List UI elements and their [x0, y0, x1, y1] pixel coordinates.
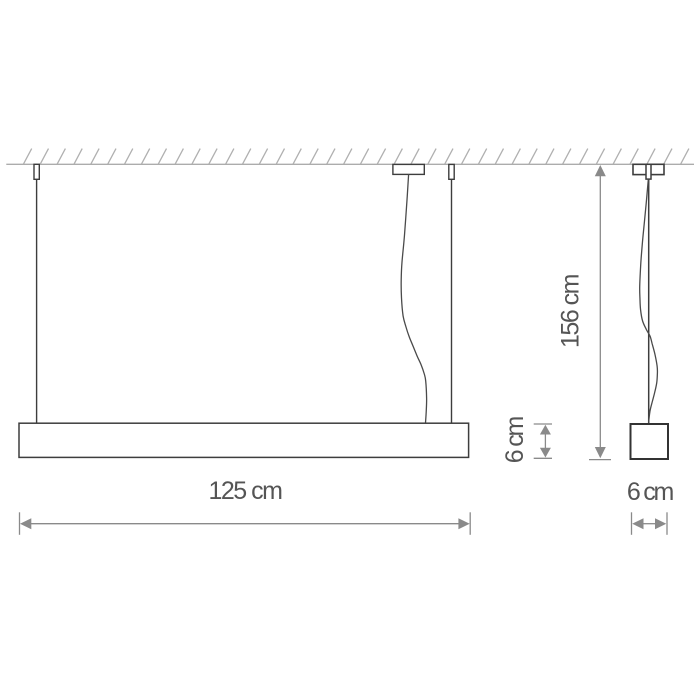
svg-text:125 cm: 125 cm — [209, 477, 283, 505]
svg-text:156 cm: 156 cm — [557, 274, 585, 348]
svg-text:6 cm: 6 cm — [501, 416, 529, 463]
svg-text:6 cm: 6 cm — [627, 478, 674, 506]
